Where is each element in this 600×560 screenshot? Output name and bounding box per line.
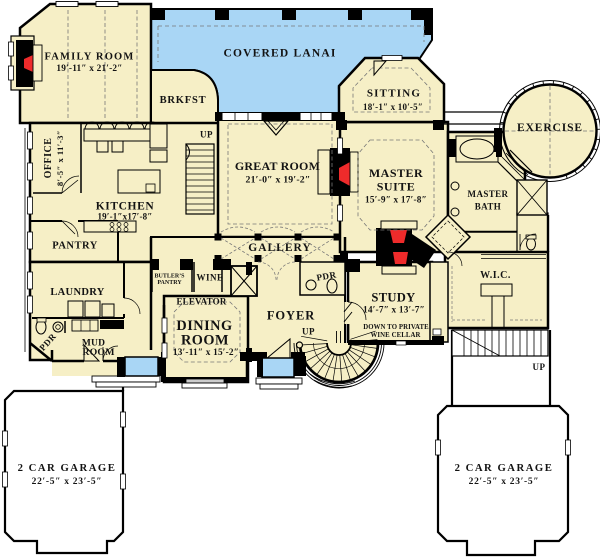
svg-text:FOYER: FOYER (267, 309, 315, 323)
svg-text:GALLERY: GALLERY (248, 242, 311, 254)
svg-text:SITTING: SITTING (367, 88, 421, 100)
svg-text:19′-1″x17′-8″: 19′-1″x17′-8″ (97, 212, 152, 222)
svg-text:GREAT ROOM: GREAT ROOM (235, 159, 320, 173)
svg-text:UP: UP (200, 130, 213, 140)
svg-text:UP: UP (533, 362, 546, 372)
svg-text:BUTLER’S: BUTLER’S (154, 274, 185, 280)
svg-text:18′-1″ x 10′-5″: 18′-1″ x 10′-5″ (363, 102, 423, 112)
svg-text:13′-11″ x 15′-2″: 13′-11″ x 15′-2″ (173, 348, 239, 358)
svg-text:STUDY: STUDY (371, 291, 415, 305)
svg-text:ROOM: ROOM (181, 333, 229, 349)
svg-text:MASTER: MASTER (369, 166, 423, 180)
svg-text:21′-0″ x 19′-2″: 21′-0″ x 19′-2″ (245, 175, 310, 186)
svg-text:LAUNDRY: LAUNDRY (50, 287, 104, 298)
svg-text:2 CAR GARAGE: 2 CAR GARAGE (18, 462, 117, 474)
svg-text:22′-5″ x 23′-5″: 22′-5″ x 23′-5″ (32, 477, 103, 487)
svg-text:ROOM: ROOM (82, 347, 114, 358)
svg-text:PANTRY: PANTRY (52, 241, 98, 252)
svg-text:WINE: WINE (196, 273, 223, 283)
svg-text:22′-5″ x 23′-5″: 22′-5″ x 23′-5″ (469, 477, 540, 487)
svg-text:DOWN TO PRIVATE: DOWN TO PRIVATE (363, 324, 429, 331)
svg-text:ELEVATOR: ELEVATOR (176, 297, 226, 307)
svg-text:FAMILY ROOM: FAMILY ROOM (44, 52, 134, 63)
svg-text:BRKFST: BRKFST (160, 95, 207, 106)
svg-text:8′-5″ x 11′-3″: 8′-5″ x 11′-3″ (55, 130, 65, 186)
svg-text:19′-11″ x 21′-2″: 19′-11″ x 21′-2″ (56, 64, 122, 74)
svg-text:EXERCISE: EXERCISE (517, 122, 583, 134)
svg-text:15′-9″ x 17′-8″: 15′-9″ x 17′-8″ (365, 196, 427, 206)
svg-text:W.I.C.: W.I.C. (480, 270, 511, 281)
svg-text:2 CAR GARAGE: 2 CAR GARAGE (455, 462, 554, 474)
svg-text:OFFICE: OFFICE (43, 138, 54, 179)
svg-text:WINE CELLAR: WINE CELLAR (370, 332, 420, 339)
svg-text:COVERED LANAI: COVERED LANAI (223, 48, 336, 60)
svg-text:14′-7″ x 13′-7″: 14′-7″ x 13′-7″ (363, 306, 425, 316)
svg-text:PANTRY: PANTRY (157, 280, 182, 286)
svg-text:BATH: BATH (475, 202, 501, 212)
svg-text:UP: UP (302, 327, 315, 337)
svg-text:SUITE: SUITE (377, 180, 416, 194)
svg-text:MASTER: MASTER (468, 189, 509, 199)
